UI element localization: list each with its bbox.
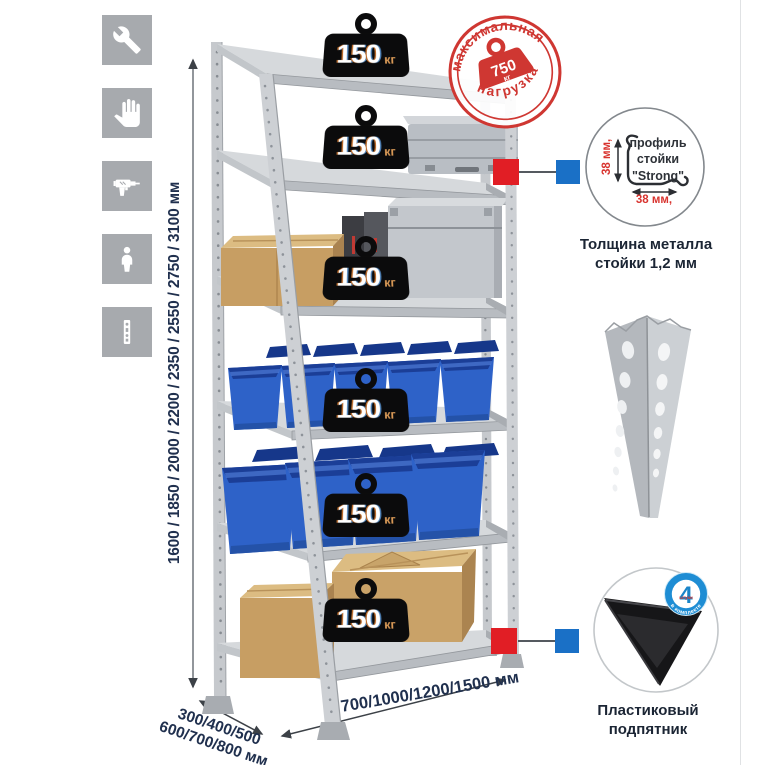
profile-detail-circle: профиль стойки "Strong" 38 мм, 38 мм,	[586, 108, 704, 226]
profile-label-line2: стойки	[637, 152, 679, 166]
foot-caption: Пластиковый подпятник	[558, 702, 738, 740]
count-badge-small-text: штуки	[679, 595, 693, 600]
wrench-icon	[112, 25, 142, 55]
shelving-infographic: профиль стойки "Strong" 38 мм, 38 мм,	[0, 0, 765, 765]
foot-caption-line2: подпятник	[558, 721, 738, 740]
weight-body: 150 кг	[322, 126, 410, 169]
profile-label-line1: профиль	[629, 136, 686, 150]
weight-ring-icon	[355, 368, 377, 390]
weight-body: 150 кг	[322, 494, 410, 537]
height-dimension-label: 1600 / 1850 / 2000 / 2200 / 2350 / 2550 …	[166, 113, 188, 633]
profile-caption-line1: Толщина металла	[556, 236, 736, 255]
feature-tile-person	[102, 234, 152, 284]
upright-post-icon	[110, 315, 144, 349]
load-unit: кг	[384, 52, 396, 66]
profile-dim-vertical: 38 мм,	[601, 139, 613, 175]
corner-post-photo	[605, 316, 691, 518]
max-load-stamp: 750 кг максимальная нагрузка	[446, 13, 564, 131]
red-marker-top	[493, 159, 519, 185]
load-badge-4: 150 кг	[322, 368, 410, 432]
load-value: 150	[336, 395, 381, 425]
feature-tile-assembly	[102, 15, 152, 65]
feature-tile-gloves	[102, 88, 152, 138]
weight-ring-icon	[355, 473, 377, 495]
profile-caption-line2: стойки 1,2 мм	[556, 255, 736, 274]
load-value: 150	[336, 132, 381, 162]
feature-tile-upright	[102, 307, 152, 357]
load-value: 150	[336, 605, 381, 635]
load-value: 150	[336, 500, 381, 530]
weight-body: 150 кг	[322, 389, 410, 432]
foot-callout-connector	[491, 628, 579, 654]
drill-icon	[110, 169, 144, 203]
weight-ring-icon	[355, 13, 377, 35]
load-badge-6: 150 кг	[322, 578, 410, 642]
load-value: 150	[336, 40, 381, 70]
load-unit: кг	[384, 512, 396, 526]
load-unit: кг	[384, 407, 396, 421]
load-badge-3: 150 кг	[322, 236, 410, 300]
weight-ring-icon	[355, 236, 377, 258]
load-badge-1: 150 кг	[322, 13, 410, 77]
weight-body: 150 кг	[322, 599, 410, 642]
person-icon	[110, 242, 144, 276]
load-unit: кг	[384, 617, 396, 631]
profile-dim-horizontal: 38 мм,	[636, 194, 672, 206]
weight-body: 150 кг	[322, 257, 410, 300]
weight-ring-icon	[355, 105, 377, 127]
load-value: 150	[336, 263, 381, 293]
feature-tile-drill	[102, 161, 152, 211]
profile-callout-connector	[493, 159, 580, 185]
blue-marker-bottom	[555, 629, 579, 653]
count-badge: 4 штуки в комплекте	[665, 573, 708, 617]
load-badge-2: 150 кг	[322, 105, 410, 169]
profile-caption: Толщина металла стойки 1,2 мм	[556, 236, 736, 274]
profile-label-line3: "Strong"	[632, 169, 684, 183]
right-divider	[740, 0, 741, 765]
load-unit: кг	[384, 275, 396, 289]
load-badge-5: 150 кг	[322, 473, 410, 537]
gloves-icon	[113, 99, 141, 127]
blue-marker-top	[556, 160, 580, 184]
red-marker-bottom	[491, 628, 517, 654]
weight-ring-icon	[355, 578, 377, 600]
foot-caption-line1: Пластиковый	[558, 702, 738, 721]
load-unit: кг	[384, 144, 396, 158]
weight-body: 150 кг	[322, 34, 410, 77]
